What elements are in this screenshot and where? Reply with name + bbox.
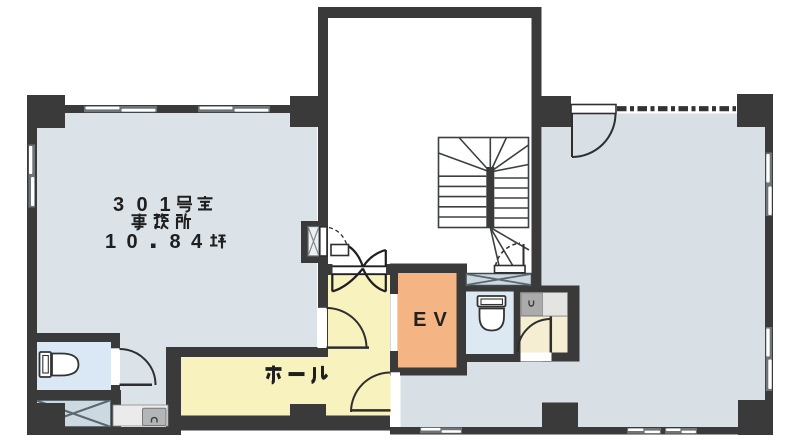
svg-text:1: 1 — [159, 194, 170, 216]
svg-text:0: 0 — [126, 231, 137, 253]
svg-text:8: 8 — [169, 231, 180, 253]
svg-text:EV: EV — [413, 309, 454, 331]
svg-text:4: 4 — [191, 231, 203, 253]
svg-text:1: 1 — [105, 231, 116, 253]
svg-text:3: 3 — [113, 194, 124, 216]
svg-text:0: 0 — [136, 194, 147, 216]
